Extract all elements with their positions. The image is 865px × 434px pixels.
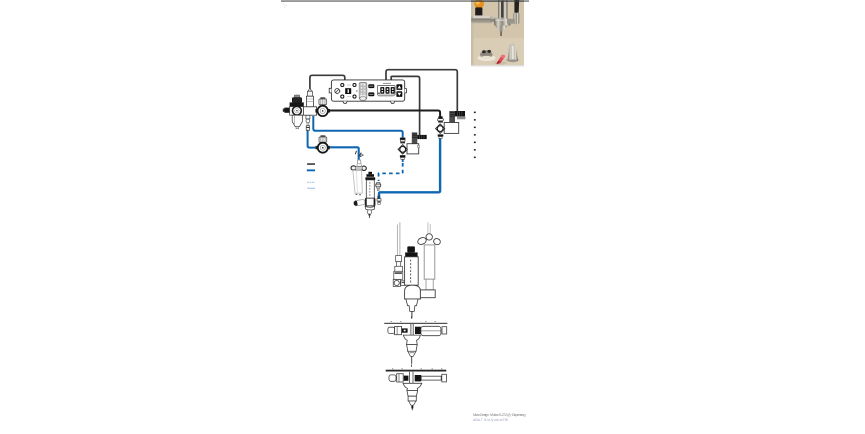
svg-text:aGa-7 .8 si /y sis w/7W: aGa-7 .8 si /y sis w/7W (473, 418, 509, 422)
svg-text:Micro Design · MVaxx S-27.2 (2: Micro Design · MVaxx S-27.2 (2) · Dispen… (473, 413, 526, 417)
